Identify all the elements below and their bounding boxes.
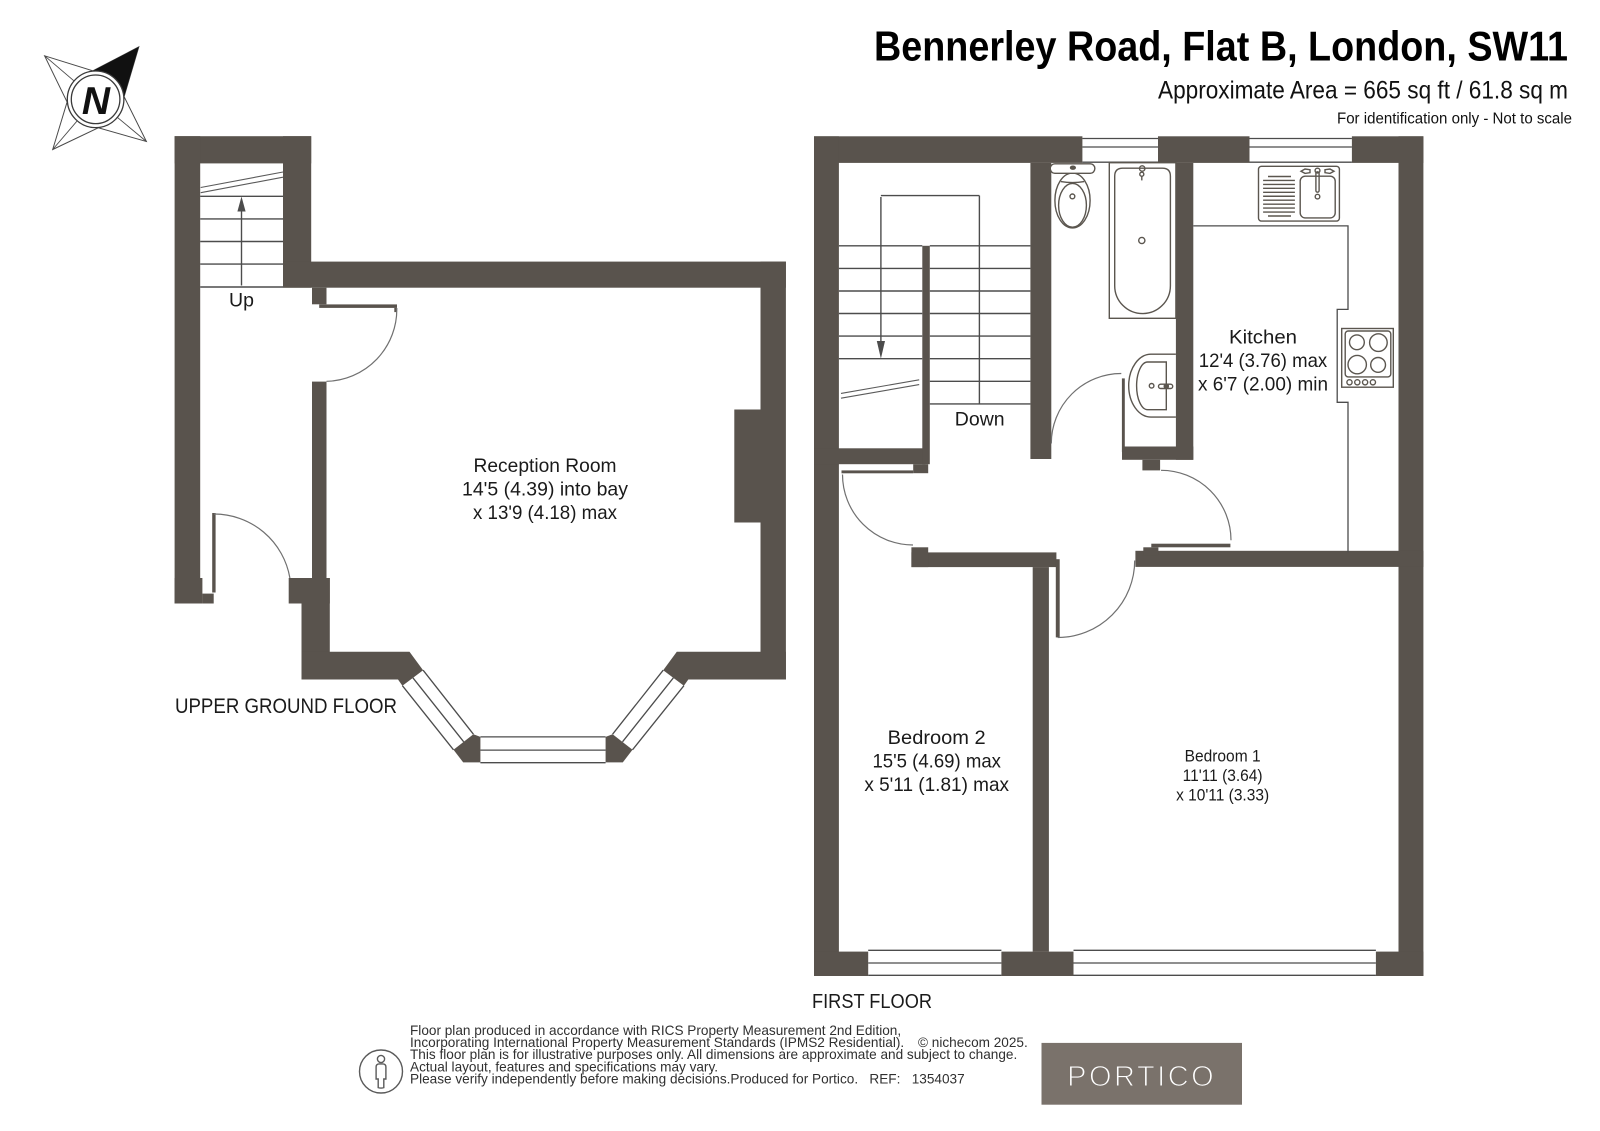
svg-text:Approximate Area = 665 sq ft /: Approximate Area = 665 sq ft / 61.8 sq m	[1158, 77, 1568, 105]
svg-text:UPPER GROUND FLOOR: UPPER GROUND FLOOR	[175, 695, 397, 718]
svg-text:FIRST FLOOR: FIRST FLOOR	[812, 990, 932, 1013]
svg-text:12'4 (3.76) max: 12'4 (3.76) max	[1199, 350, 1328, 372]
svg-text:Please verify independently be: Please verify independently before makin…	[410, 1072, 965, 1087]
svg-text:15'5 (4.69) max: 15'5 (4.69) max	[872, 751, 1001, 773]
svg-text:Up: Up	[229, 290, 254, 312]
svg-text:Bedroom 2: Bedroom 2	[888, 727, 986, 749]
svg-text:Bennerley Road, Flat B, London: Bennerley Road, Flat B, London, SW11	[874, 23, 1568, 70]
svg-text:For identification only - Not: For identification only - Not to scale	[1337, 111, 1572, 128]
svg-text:x 13'9 (4.18) max: x 13'9 (4.18) max	[473, 502, 617, 524]
svg-text:N: N	[82, 80, 111, 123]
svg-text:x 6'7 (2.00) min: x 6'7 (2.00) min	[1198, 374, 1328, 396]
svg-text:11'11 (3.64): 11'11 (3.64)	[1183, 767, 1263, 785]
svg-text:14'5 (4.39) into bay: 14'5 (4.39) into bay	[462, 479, 628, 501]
svg-text:Bedroom 1: Bedroom 1	[1185, 748, 1261, 766]
svg-text:x 5'11 (1.81) max: x 5'11 (1.81) max	[864, 774, 1009, 796]
svg-text:Reception Room: Reception Room	[474, 455, 617, 477]
svg-text:Kitchen: Kitchen	[1229, 327, 1297, 349]
svg-text:x 10'11 (3.33): x 10'11 (3.33)	[1176, 787, 1269, 805]
svg-text:Down: Down	[955, 409, 1005, 431]
svg-text:PORTICO: PORTICO	[1067, 1061, 1216, 1093]
